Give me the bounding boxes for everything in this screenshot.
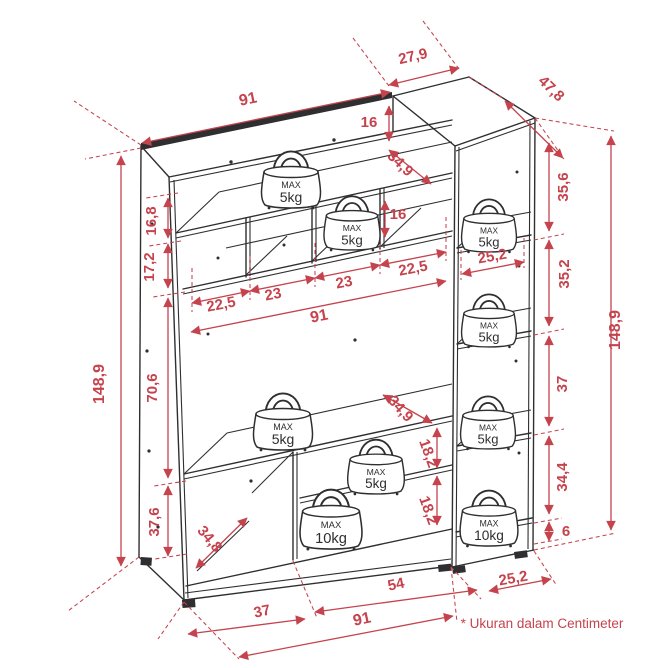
dim-label-width-mid-91: 91 bbox=[309, 307, 330, 327]
dim-label-bottom-54: 54 bbox=[386, 574, 406, 594]
weight-load-text: 5kg bbox=[479, 329, 500, 344]
dim-label-col-depth-47-8: 47,8 bbox=[535, 73, 568, 106]
dim-label-width-top-91: 91 bbox=[238, 89, 259, 109]
dim-label-col-inner-25-2: 25,2 bbox=[476, 246, 508, 268]
weight-load-text: 10kg bbox=[474, 528, 504, 543]
dim-label-left-37-6: 37,6 bbox=[146, 507, 163, 536]
diagram-canvas: MAX5kgMAX5kgMAX5kgMAX5kgMAX5kgMAX5kgMAX5… bbox=[0, 0, 668, 668]
weight-icon-w-col-shelf1: MAX5kg bbox=[462, 203, 517, 254]
dim-label-bottom-91: 91 bbox=[352, 609, 373, 629]
weight-icon-w-mid-shelf: MAX5kg bbox=[254, 397, 313, 451]
dim-label-col-35-2: 35,2 bbox=[556, 259, 573, 288]
dim-label-shelf-top-16: 16 bbox=[361, 114, 378, 131]
dimension-arrows bbox=[121, 68, 611, 657]
weight-max-text: MAX bbox=[479, 518, 498, 528]
weight-load-text: 5kg bbox=[280, 189, 303, 205]
dim-label-left-16-8: 16,8 bbox=[143, 206, 160, 235]
weight-icon-w-col-shelf3: MAX5kg bbox=[461, 400, 516, 451]
foot bbox=[514, 550, 528, 559]
foot bbox=[140, 557, 152, 566]
dim-label-depth-top-34-9: 34,9 bbox=[384, 148, 417, 181]
weight-load-text: 5kg bbox=[341, 232, 362, 247]
weight-load-text: 5kg bbox=[365, 476, 387, 491]
dim-label-right-148-9: 148,9 bbox=[607, 310, 624, 350]
dim-label-bottom-37: 37 bbox=[252, 602, 272, 622]
dim-label-cubby-22-5-a: 22,5 bbox=[205, 293, 237, 315]
dim-label-col-34-4: 34,4 bbox=[554, 462, 571, 492]
weight-icon-w-top-shelf: MAX5kg bbox=[262, 155, 321, 209]
weight-load-text: 5kg bbox=[478, 431, 499, 446]
dim-label-bottom-25-2: 25,2 bbox=[497, 568, 529, 590]
weight-load-text: 10kg bbox=[315, 531, 347, 547]
foot bbox=[438, 564, 452, 572]
dim-label-left-17-2: 17,2 bbox=[141, 252, 158, 281]
foot bbox=[182, 599, 196, 608]
dim-label-col-width-27-9: 27,9 bbox=[397, 45, 429, 68]
dim-label-col-35-6: 35,6 bbox=[555, 172, 572, 201]
footnote-units-note: * Ukuran dalam Centimeter bbox=[461, 616, 624, 631]
weight-icon-w-cubby-shelf: MAX5kg bbox=[324, 200, 380, 252]
dim-label-left-70-6: 70,6 bbox=[144, 373, 161, 402]
weight-icon-w-col-bottom-10kg: MAX10kg bbox=[460, 494, 518, 547]
dim-label-shelf-mid-16: 16 bbox=[390, 206, 407, 223]
dim-label-depth-34-8: 34,8 bbox=[194, 522, 226, 555]
weight-load-text: 5kg bbox=[272, 431, 295, 447]
furniture-dimension-diagram: MAX5kgMAX5kgMAX5kgMAX5kgMAX5kgMAX5kgMAX5… bbox=[0, 0, 668, 668]
dim-label-col-37: 37 bbox=[554, 376, 571, 393]
dim-label-left-148-9: 148,9 bbox=[91, 364, 108, 404]
weight-icon-w-lower-shelf: MAX5kg bbox=[348, 443, 405, 495]
dim-label-cubby-23-b: 23 bbox=[334, 273, 354, 293]
weight-icon-w-col-shelf2: MAX5kg bbox=[462, 298, 517, 349]
weight-icon-w-bottom-10kg: MAX10kg bbox=[300, 493, 362, 550]
dim-label-cubby-23-a: 23 bbox=[263, 285, 283, 305]
top-panel-edge bbox=[141, 92, 392, 150]
weight-max-text: MAX bbox=[321, 520, 342, 531]
dim-label-col-6: 6 bbox=[562, 523, 570, 540]
